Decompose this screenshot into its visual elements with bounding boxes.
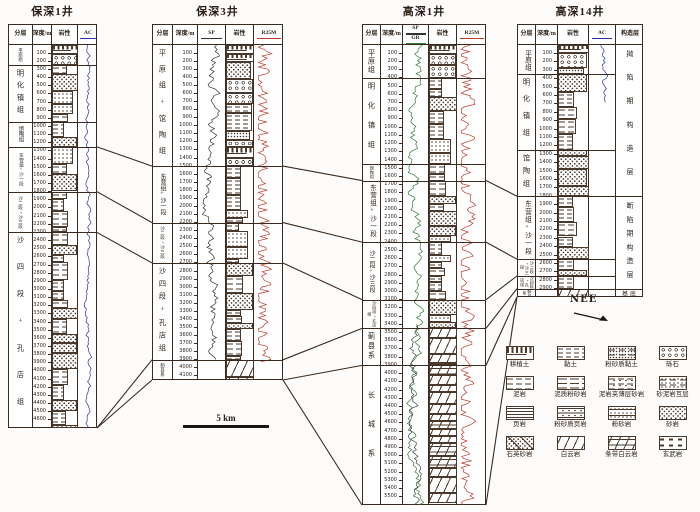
depth-tick [554, 221, 557, 222]
well-body: 平原组明化镇组馆陶组东营组+沙一段沙二段+沙三段沙四段+孔店组蓟县系长城系100… [363, 45, 485, 505]
depth-label: 3500 [179, 325, 192, 330]
lith-pattern [559, 260, 573, 269]
depth-label: 2500 [179, 244, 192, 249]
header-underline [406, 43, 426, 45]
lith-block [52, 343, 77, 353]
depth-tick [194, 61, 197, 62]
depth-tick [399, 201, 402, 202]
lith-pattern [227, 378, 253, 379]
depth-tick [48, 338, 51, 339]
depth-tick [399, 86, 402, 87]
lith-block [226, 166, 241, 178]
lith-pattern [430, 165, 444, 173]
lith-pattern [430, 112, 443, 122]
formation-cell: 沙二段+沙三段 [518, 259, 535, 276]
lith-pattern [227, 317, 241, 322]
formation-cell: 沙二段+沙三段 [9, 192, 32, 233]
depth-label: 3400 [179, 317, 192, 322]
depth-label: 200 [542, 59, 552, 64]
depth-tick [194, 190, 197, 191]
correlation-line [283, 223, 362, 243]
formation-label: 平原组 [522, 50, 532, 70]
depth-label: 2800 [539, 278, 552, 283]
depth-tick [399, 480, 402, 481]
depth-tick [194, 375, 197, 376]
depth-label: 1100 [384, 133, 397, 138]
depth-tick [399, 348, 402, 349]
depth-label: 2000 [539, 211, 552, 216]
depth-tick [48, 167, 51, 168]
lith-pattern [559, 108, 576, 118]
depth-tick [194, 319, 197, 320]
depth-tick [399, 439, 402, 440]
lith-block [52, 74, 78, 91]
legend-item: 玄武岩 [647, 436, 698, 459]
column-header-label: 岩性 [436, 31, 448, 38]
column-header-label: 深度/m [382, 31, 401, 38]
depth-label: 3200 [33, 303, 46, 308]
lith-pattern [430, 197, 455, 203]
lith-block [52, 232, 68, 244]
lith-block [558, 169, 587, 185]
depth-label: 400 [36, 75, 46, 80]
legend-label: 条带白云岩 [596, 451, 647, 459]
lith-pattern [227, 357, 240, 359]
lith-pattern [559, 120, 575, 133]
lith-pattern [53, 115, 67, 121]
lith-block [226, 131, 250, 140]
lith-block [226, 104, 252, 113]
depth-label: 2300 [179, 228, 192, 233]
lith-pattern [227, 311, 240, 315]
formation-boundary [9, 192, 96, 193]
depth-label: 900 [542, 118, 552, 123]
depth-label: 1000 [539, 127, 552, 132]
formation-boundary [153, 263, 282, 264]
lith-pattern [227, 264, 252, 275]
depth-label: 3000 [179, 285, 192, 290]
lith-block [429, 111, 444, 123]
depth-label: 2700 [33, 263, 46, 268]
depth-tick [48, 118, 51, 119]
lith-pattern [53, 426, 77, 427]
correlation-line [283, 380, 362, 505]
curve-column [254, 45, 282, 380]
lith-pattern [227, 342, 241, 355]
formation-label: 沙四段+孔店组 [367, 300, 377, 329]
depth-tick [554, 271, 557, 272]
lith-block [52, 137, 77, 147]
depth-tick [554, 145, 557, 146]
depth-tick [399, 258, 402, 259]
legend-swatch [608, 376, 636, 390]
column-header: 深度/m [173, 25, 198, 44]
legend-label: 泥岩夹薄层砂岩 [596, 391, 647, 399]
depth-label: 1600 [179, 172, 192, 177]
lith-pattern [227, 260, 238, 262]
lith-block [429, 97, 457, 111]
header-underline [201, 38, 223, 40]
depth-tick [399, 94, 402, 95]
lith-block [429, 421, 457, 428]
depth-label: 2600 [539, 261, 552, 266]
lith-pattern [53, 123, 63, 135]
lith-pattern [227, 167, 240, 177]
depth-tick [194, 327, 197, 328]
log-curve [202, 45, 220, 360]
formation-label: 馆陶组 [369, 166, 374, 179]
depth-tick [399, 143, 402, 144]
depth-label: 2400 [179, 236, 192, 241]
lith-block [429, 139, 451, 153]
depth-label: 4000 [384, 371, 397, 376]
legend-pattern [558, 377, 584, 389]
lith-pattern [430, 469, 456, 476]
depth-tick [399, 110, 402, 111]
depth-tick [554, 187, 557, 188]
legend-swatch [506, 436, 534, 450]
legend-swatch [608, 406, 636, 420]
formation-cell: 沙四段+孔店组 [518, 276, 535, 289]
legend-item: 粉砂质黏土 [596, 346, 647, 369]
depth-label: 2200 [539, 227, 552, 232]
legend-item: 砾石 [647, 346, 698, 369]
lith-pattern [430, 154, 450, 163]
legend-item: 条带白云岩 [596, 436, 647, 459]
lith-block [558, 276, 574, 289]
well-title: 保深1井 [0, 3, 109, 19]
lith-pattern [53, 55, 76, 64]
depth-tick [399, 135, 402, 136]
formation-label: 平原组 [367, 49, 377, 74]
depth-tick [48, 354, 51, 355]
legend-item: 黏土 [545, 346, 596, 369]
column-header: R25M [457, 25, 487, 44]
formation-label: 沙二段+沙三段 [367, 250, 376, 293]
depth-tick [399, 496, 402, 497]
depth-tick [554, 255, 557, 256]
depth-label: 4600 [33, 417, 46, 422]
column-header-label: GR [411, 35, 419, 42]
lith-block [52, 65, 67, 74]
strat-column: 平原组+馆陶组东营组+沙一段沙二段+沙三段沙四段+孔店组蓟县系 [153, 45, 173, 380]
depth-label: 600 [182, 91, 192, 96]
depth-label: 2100 [179, 212, 192, 217]
well-title: 高深14井 [505, 3, 655, 19]
lith-block [429, 196, 456, 204]
depth-tick [194, 279, 197, 280]
legend-swatch [608, 436, 636, 450]
column-header-label: 分层 [156, 31, 168, 38]
lith-pattern [53, 200, 63, 210]
column-header-label: R25M [262, 30, 277, 37]
correlation-line [283, 263, 362, 300]
lith-block [226, 45, 254, 54]
formation-cell: 东营组+沙一段 [518, 196, 535, 259]
lith-pattern [430, 422, 456, 427]
depth-label: 3700 [384, 346, 397, 351]
depth-tick [48, 256, 51, 257]
scale-bar: 5 km [183, 413, 269, 428]
header-underline [80, 38, 96, 40]
legend-pattern [507, 407, 533, 419]
lith-block [558, 74, 587, 91]
depth-label: 3000 [33, 287, 46, 292]
depth-tick [399, 184, 402, 185]
depth-label: 900 [36, 116, 46, 121]
depth-label: 4200 [384, 388, 397, 393]
legend-item: 泥岩 [494, 376, 545, 399]
lith-pattern [559, 187, 588, 196]
lith-pattern [53, 281, 63, 290]
column-header-label: 岩性 [567, 31, 579, 38]
lith-pattern [430, 316, 450, 321]
lith-block [52, 122, 64, 136]
formation-label: 蓟县系 [522, 289, 532, 297]
lith-pattern [559, 208, 573, 221]
lith-pattern [227, 148, 253, 157]
depth-label: 1800 [179, 188, 192, 193]
log-curve-canvas [78, 45, 96, 428]
lith-block [226, 79, 253, 93]
column-header: 分层 [363, 25, 381, 44]
depth-tick [194, 174, 197, 175]
depth-label: 2100 [33, 214, 46, 219]
depth-tick [194, 149, 197, 150]
column-header-label: 深度/m [537, 31, 556, 38]
column-header: 岩性 [226, 25, 254, 44]
depth-label: 4200 [33, 385, 46, 390]
depth-tick [194, 93, 197, 94]
lith-pattern [430, 175, 444, 179]
depth-tick [554, 263, 557, 264]
lith-block [558, 186, 589, 197]
well-body: 平原组+馆陶组东营组+沙一段沙二段+沙三段沙四段+孔店组蓟县系100200300… [153, 45, 282, 380]
lith-pattern [53, 233, 67, 243]
strat-column: 平原组明化镇组馆陶组东营组+沙一段沙二段+沙三段沙四段+孔店组蓟县系长城系 [363, 45, 381, 505]
depth-tick [194, 351, 197, 352]
lith-block [226, 147, 254, 158]
column-header-label: 分层 [520, 31, 532, 38]
legend-label: 粉砂质页岩 [545, 421, 596, 429]
lith-pattern [53, 301, 67, 308]
depth-tick [399, 431, 402, 432]
depth-tick [554, 103, 557, 104]
depth-tick [554, 246, 557, 247]
column-header: 分层 [518, 25, 536, 44]
curve-column [403, 45, 429, 505]
depth-label: 4600 [384, 420, 397, 425]
legend-pattern [660, 377, 686, 389]
lith-block [558, 196, 573, 207]
depth-label: 200 [387, 59, 397, 64]
legend-pattern [558, 347, 584, 359]
depth-tick [48, 199, 51, 200]
lith-block [226, 210, 248, 218]
lith-block [52, 262, 68, 280]
depth-tick [48, 370, 51, 371]
column-header: 岩性 [558, 25, 589, 44]
column-header-label: AC [84, 30, 92, 37]
depth-label: 800 [542, 110, 552, 115]
formation-cell: 明化镇组 [363, 78, 380, 164]
depth-column: 1002003004005006007008009001000110012001… [381, 45, 403, 505]
depth-label: 4300 [33, 393, 46, 398]
depth-tick [48, 411, 51, 412]
lith-pattern [430, 243, 441, 253]
depth-label: 4100 [179, 373, 192, 378]
formation-label: 沙四段+孔店组 [158, 267, 168, 357]
correlation-line [486, 242, 517, 259]
legend-item: 粉砂岩 [596, 406, 647, 429]
column-header-label: 分层 [365, 31, 377, 38]
depth-tick [48, 126, 51, 127]
tect-column: 拗陷期构造层断陷期构造层基底 [616, 45, 642, 297]
scale-bar-line [183, 425, 269, 428]
lith-block [429, 443, 457, 455]
depth-label: 1100 [33, 132, 46, 137]
depth-tick [194, 158, 197, 159]
lith-block [429, 78, 442, 89]
lith-pattern [430, 269, 444, 275]
formation-label: 平原组+馆陶组 [158, 49, 168, 163]
formation-label: 蓟县系 [367, 332, 377, 361]
depth-label: 600 [542, 93, 552, 98]
legend-label: 粉砂岩 [596, 421, 647, 429]
depth-tick [554, 120, 557, 121]
legend-item: 砂泥岩互层 [647, 376, 698, 399]
formation-label: 东营组+沙一段 [522, 200, 532, 255]
depth-tick [48, 395, 51, 396]
depth-label: 3800 [179, 349, 192, 354]
lith-pattern [430, 277, 441, 282]
column-header: 分层 [9, 25, 33, 44]
formation-cell: 蓟县系 [518, 289, 535, 297]
lith-block [429, 282, 442, 291]
formation-boundary [363, 164, 485, 165]
column-header: 分层 [153, 25, 173, 44]
correlation-line [97, 232, 152, 263]
lith-block [52, 300, 68, 309]
lith-block [429, 268, 445, 276]
correlation-line [283, 365, 362, 380]
lith-block [558, 247, 589, 259]
lith-block [429, 181, 446, 196]
correlation-line [97, 147, 152, 166]
correlation-line [283, 166, 362, 180]
depth-tick [48, 322, 51, 323]
well-header-row: 分层深度/m岩性AC [9, 25, 96, 45]
depth-label: 1900 [539, 202, 552, 207]
depth-label: 400 [182, 75, 192, 80]
depth-tick [554, 179, 557, 180]
depth-label: 1300 [384, 149, 397, 154]
lith-pattern [53, 246, 76, 255]
lith-block [429, 65, 456, 78]
lith-block [429, 468, 457, 477]
depth-label: 2500 [384, 248, 397, 253]
depth-tick [194, 246, 197, 247]
depth-tick [48, 207, 51, 208]
depth-label: 100 [36, 51, 46, 56]
well-header-row: 分层深度/mSPGR岩性R25M [363, 25, 485, 45]
lith-block [52, 255, 64, 262]
lith-block [558, 222, 577, 237]
depth-label: 1600 [539, 177, 552, 182]
formation-boundary [363, 78, 485, 79]
depth-label: 2100 [539, 219, 552, 224]
lith-pattern [559, 75, 586, 90]
formation-label: 沙四段+孔店组 [519, 276, 533, 289]
lith-block [558, 45, 589, 53]
depth-label: 2100 [384, 215, 397, 220]
depth-tick [194, 133, 197, 134]
lith-block [226, 263, 253, 276]
legend-pattern [558, 437, 584, 449]
lith-pattern [227, 361, 253, 376]
lith-block [226, 140, 253, 147]
depth-tick [399, 406, 402, 407]
well-header-row: 分层深度/mSP岩性R25M [153, 25, 282, 45]
depth-label: 3600 [384, 338, 397, 343]
depth-tick [48, 387, 51, 388]
column-header: SP [198, 25, 226, 44]
lith-pattern [53, 335, 76, 342]
depth-tick [194, 109, 197, 110]
lith-block [429, 328, 457, 338]
formation-cell: 平原组 [363, 45, 380, 78]
lith-pattern [53, 354, 77, 369]
lith-pattern [227, 219, 242, 221]
depth-label: 4900 [384, 445, 397, 450]
lith-pattern [53, 370, 67, 383]
lith-block [429, 338, 457, 354]
lith-pattern [559, 93, 573, 107]
depth-label: 2000 [384, 207, 397, 212]
lith-pattern [559, 223, 576, 236]
depth-tick [48, 53, 51, 54]
legend-swatch [659, 406, 687, 420]
lith-pattern [227, 232, 247, 246]
well-title: 高深1井 [350, 3, 498, 19]
depth-label: 1500 [33, 165, 46, 170]
depth-label: 4700 [384, 429, 397, 434]
depth-tick [48, 61, 51, 62]
direction-indicator: NEE [570, 289, 642, 330]
formation-label: 长城系 [367, 391, 377, 479]
depth-tick [399, 291, 402, 292]
depth-tick [48, 313, 51, 314]
depth-tick [48, 403, 51, 404]
formation-boundary [363, 300, 485, 301]
lith-pattern [227, 55, 253, 61]
lith-pattern [559, 277, 573, 288]
lith-pattern [53, 256, 63, 261]
lith-block [429, 436, 457, 443]
depth-label: 1700 [179, 180, 192, 185]
depth-label: 4500 [384, 412, 397, 417]
well-title: 保深3井 [140, 3, 295, 19]
lith-block [226, 276, 243, 293]
depth-label: 1100 [179, 131, 192, 136]
depth-tick [554, 238, 557, 239]
lith-block [558, 237, 573, 248]
lith-block [429, 242, 442, 254]
legend-item: 页岩 [494, 406, 545, 429]
lith-block [52, 45, 78, 54]
lith-block [429, 300, 457, 316]
column-header: 岩性 [52, 25, 78, 44]
